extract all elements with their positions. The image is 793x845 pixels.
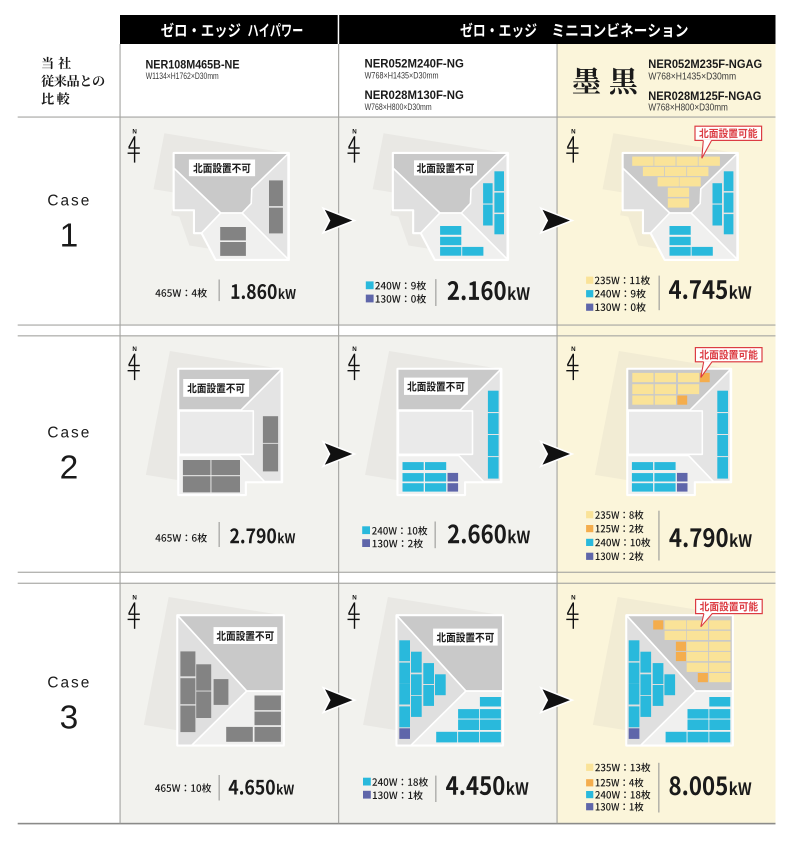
svg-text:W768×H800×D30mm: W768×H800×D30mm bbox=[365, 102, 432, 112]
svg-text:W768×H800×D30mm: W768×H800×D30mm bbox=[648, 103, 728, 114]
svg-text:N: N bbox=[132, 346, 137, 353]
svg-text:NER028M130F-NG: NER028M130F-NG bbox=[365, 88, 464, 102]
svg-text:W768×H1435×D30mm: W768×H1435×D30mm bbox=[365, 70, 439, 80]
svg-text:3: 3 bbox=[60, 700, 79, 737]
svg-text:NER052M235F-NGAG: NER052M235F-NGAG bbox=[648, 57, 762, 71]
svg-text:W1134×H1762×D30mm: W1134×H1762×D30mm bbox=[146, 71, 219, 81]
svg-text:Case: Case bbox=[47, 674, 91, 691]
svg-text:N: N bbox=[571, 595, 576, 602]
svg-text:N: N bbox=[571, 346, 576, 353]
svg-text:2: 2 bbox=[60, 450, 79, 487]
svg-text:1: 1 bbox=[60, 218, 79, 255]
svg-text:Case: Case bbox=[47, 424, 91, 441]
svg-text:N: N bbox=[571, 128, 576, 135]
svg-text:N: N bbox=[132, 595, 137, 602]
svg-text:N: N bbox=[352, 128, 357, 135]
svg-text:NER052M240F-NG: NER052M240F-NG bbox=[365, 57, 464, 71]
svg-text:N: N bbox=[132, 128, 137, 135]
svg-text:N: N bbox=[352, 595, 357, 602]
svg-text:W768×H1435×D30mm: W768×H1435×D30mm bbox=[648, 71, 736, 82]
svg-text:Case: Case bbox=[47, 192, 91, 209]
svg-text:NER108M465B-NE: NER108M465B-NE bbox=[146, 57, 240, 71]
svg-text:NER028M125F-NGAG: NER028M125F-NGAG bbox=[648, 89, 761, 103]
svg-text:N: N bbox=[352, 346, 357, 353]
